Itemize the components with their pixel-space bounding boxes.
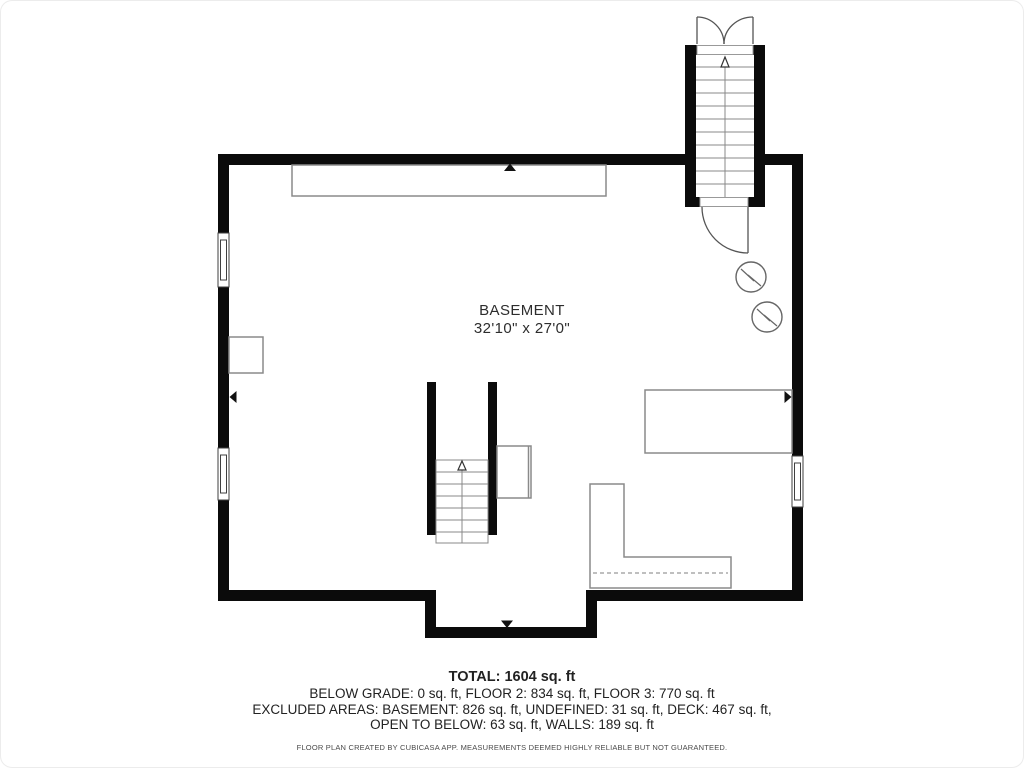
stairwell-top-wall-left-stub xyxy=(685,45,697,55)
double-door-threshold xyxy=(697,46,753,55)
water-heater-icon xyxy=(752,302,782,332)
window-right xyxy=(792,456,803,507)
disclaimer-text: FLOOR PLAN CREATED BY CUBICASA APP. MEAS… xyxy=(0,743,1024,752)
floorplan-drawing: BASEMENT 32'10" x 27'0" xyxy=(0,0,1024,768)
stairwell-bottom-wall-right-stub xyxy=(748,197,765,207)
floors-area-text: BELOW GRADE: 0 sq. ft, FLOOR 2: 834 sq. … xyxy=(0,686,1024,702)
exterior-stairwell xyxy=(685,17,765,253)
window-left-upper xyxy=(218,233,229,287)
excluded-areas-text-2: OPEN TO BELOW: 63 sq. ft, WALLS: 189 sq.… xyxy=(0,717,1024,733)
right-wall-lower xyxy=(792,507,803,601)
bottom-wall-right xyxy=(586,590,803,601)
staircase-side-panel xyxy=(497,446,531,498)
bottom-wall-left xyxy=(218,590,436,601)
water-heater-icon xyxy=(736,262,766,292)
excluded-areas-text-1: EXCLUDED AREAS: BASEMENT: 826 sq. ft, UN… xyxy=(0,702,1024,718)
dimension-marker-bottom-icon xyxy=(501,621,513,629)
area-summary: TOTAL: 1604 sq. ft BELOW GRADE: 0 sq. ft… xyxy=(0,669,1024,752)
window-left-lower xyxy=(218,448,229,500)
dimension-marker-left-icon xyxy=(230,391,237,403)
staircase-right-wall xyxy=(488,382,497,535)
room-label: BASEMENT xyxy=(479,302,565,319)
stairwell-door-swing-icon xyxy=(702,207,748,253)
stairs-up-arrow-icon xyxy=(721,57,729,67)
stairwell-right-wall xyxy=(754,45,765,207)
top-wall-left xyxy=(218,154,686,165)
staircase-left-wall xyxy=(427,382,436,535)
total-area-text: TOTAL: 1604 sq. ft xyxy=(0,669,1024,686)
stairwell-left-wall xyxy=(685,45,696,207)
interior-staircase xyxy=(427,382,531,543)
left-wall-upper xyxy=(218,154,229,233)
left-wall-middle xyxy=(218,287,229,448)
exterior-walls xyxy=(218,154,803,638)
stairwell-bottom-wall-left-stub xyxy=(685,197,700,207)
staircase-up-arrow-icon xyxy=(458,461,466,470)
right-wall-upper xyxy=(792,154,803,456)
room-dimensions: 32'10" x 27'0" xyxy=(474,320,570,337)
floorplan-page: BASEMENT 32'10" x 27'0" TOTAL: 1604 sq. … xyxy=(0,0,1024,768)
overhead-feature-top xyxy=(292,165,606,196)
left-wall-lower xyxy=(218,500,229,601)
chimney-box xyxy=(229,337,263,373)
dimension-marker-right-icon xyxy=(785,391,792,403)
double-door-icon xyxy=(697,17,753,44)
bumpout-bottom-wall xyxy=(425,627,597,638)
stairwell-top-wall-right-stub xyxy=(753,45,765,55)
exterior-stairs-treads xyxy=(696,57,754,197)
stairwell-door-threshold xyxy=(700,198,748,207)
lower-right-area-outline xyxy=(590,484,731,588)
overhead-feature-right xyxy=(645,390,792,453)
